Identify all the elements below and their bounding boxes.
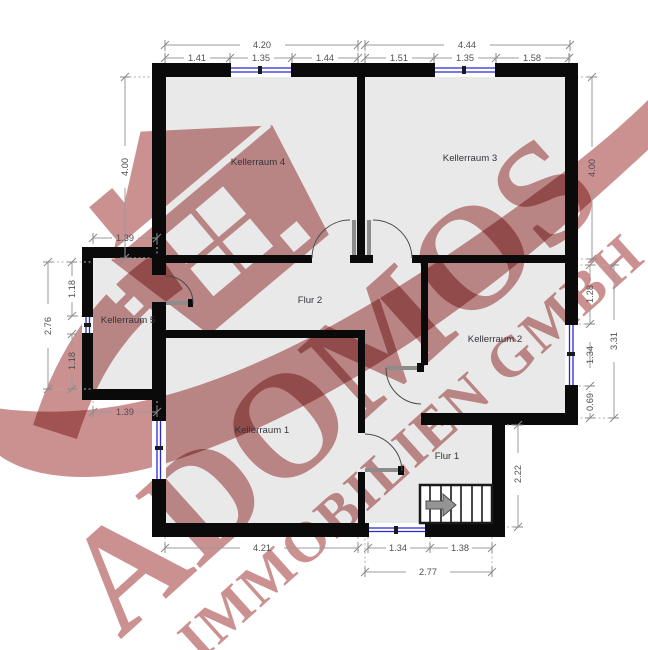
dim-flur1-height: 2.22: [513, 465, 523, 483]
room-label-flur1: Flur 1: [435, 451, 460, 462]
room-label-kellerraum2: Kellerraum 2: [468, 334, 522, 345]
dim-left-k5-b: 1.18: [67, 352, 77, 370]
window-k2-right: [565, 322, 578, 388]
window-k3-top: [432, 63, 498, 77]
dim-top-left-b: 1.35: [252, 53, 270, 63]
dim-right-k2-a: 1.28: [585, 285, 595, 303]
dim-top-right-total: 4.44: [458, 40, 476, 50]
dim-bottom-window: 1.34: [389, 543, 407, 553]
dim-left-k5-total: 2.76: [43, 317, 53, 335]
window-k5-left: [82, 314, 93, 336]
dim-top-right-c: 1.58: [523, 53, 541, 63]
window-k1-left: [152, 418, 166, 482]
dim-right-k2-b: 0.69: [585, 393, 595, 411]
room-label-kellerraum5: Kellerraum 5: [101, 315, 155, 326]
window-bottom: [366, 523, 428, 537]
room-label-kellerraum3: Kellerraum 3: [443, 153, 497, 164]
dim-bottom-k1: 4.21: [253, 543, 271, 553]
window-k4-top: [228, 63, 294, 77]
floor-plan-page: ADOMOS IMMOBILIEN GMBH: [0, 0, 648, 650]
dim-left-k4-height: 4.00: [120, 158, 130, 176]
dim-left-step-top: 1.39: [116, 233, 134, 243]
dim-right-k2-total: 3.31: [609, 332, 619, 350]
dim-bottom-stairs: 1.38: [451, 543, 469, 553]
dim-right-k2-window: 1.34: [585, 346, 595, 364]
dim-top-right-a: 1.51: [390, 53, 408, 63]
dim-left-step-bottom: 1.39: [116, 407, 134, 417]
floor-plan-drawing: ADOMOS IMMOBILIEN GMBH: [0, 0, 648, 650]
room-label-kellerraum4: Kellerraum 4: [231, 157, 286, 168]
dim-top-left-a: 1.41: [188, 53, 206, 63]
room-label-kellerraum1: Kellerraum 1: [235, 425, 289, 436]
staircase: [420, 485, 492, 523]
dim-top-right-b: 1.35: [456, 53, 474, 63]
dim-right-k3-height: 4.00: [587, 159, 597, 177]
dim-bottom-right-total: 2.77: [419, 567, 437, 577]
dim-top-left-total: 4.20: [253, 40, 271, 50]
dim-top-left-c: 1.44: [316, 53, 334, 63]
room-label-flur2: Flur 2: [298, 295, 323, 306]
dim-left-k5-a: 1.18: [67, 280, 77, 298]
